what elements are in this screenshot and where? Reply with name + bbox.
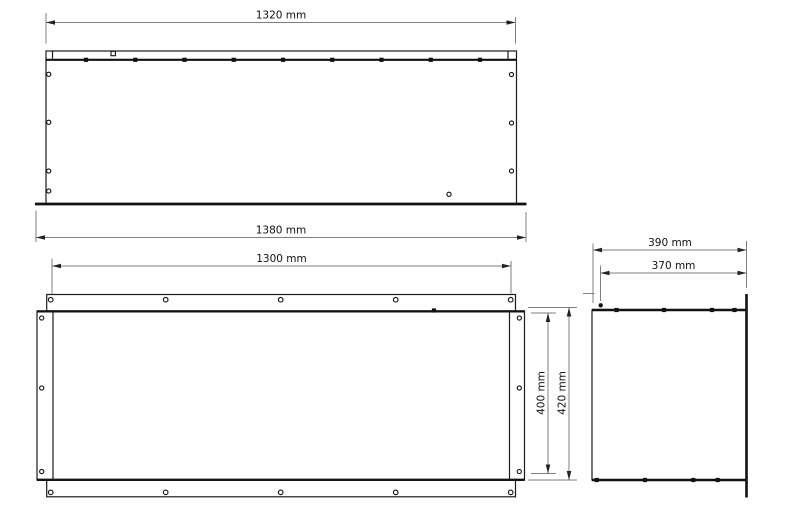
dim-side-inner-depth-label: 370 mm bbox=[652, 260, 696, 272]
mounting-hole bbox=[393, 297, 398, 302]
arrowhead-icon bbox=[502, 264, 511, 269]
arrowhead-icon bbox=[507, 20, 516, 25]
mounting-hole bbox=[48, 490, 53, 495]
mounting-hole bbox=[40, 316, 44, 320]
mounting-hole bbox=[278, 297, 283, 302]
fastener-dot bbox=[133, 58, 137, 62]
mounting-hole bbox=[509, 72, 513, 76]
fastener-dot bbox=[429, 58, 433, 62]
mounting-hole bbox=[447, 192, 451, 196]
mounting-hole bbox=[278, 490, 283, 495]
fastener-dot bbox=[84, 58, 88, 62]
back-top-flange-holes bbox=[48, 297, 513, 302]
fastener-dot bbox=[232, 58, 236, 62]
arrowhead-icon bbox=[738, 248, 747, 253]
fastener-dot bbox=[595, 478, 599, 482]
side-body-outline bbox=[592, 310, 747, 480]
mounting-hole bbox=[517, 316, 521, 320]
fastener-dot bbox=[662, 308, 666, 312]
dim-side-inner-depth: 370 mm bbox=[601, 260, 747, 301]
mounting-hole bbox=[47, 72, 51, 76]
dim-front-base-width: 1380 mm bbox=[36, 211, 526, 243]
mounting-hole bbox=[40, 469, 44, 473]
drawing-canvas: 1320 mm bbox=[0, 0, 787, 517]
mounting-hole bbox=[163, 297, 168, 302]
fastener-dot bbox=[732, 308, 736, 312]
mounting-hole bbox=[517, 386, 521, 390]
dim-front-top-width-label: 1320 mm bbox=[256, 10, 307, 22]
fastener-dot bbox=[614, 308, 618, 312]
fastener-dot bbox=[281, 58, 285, 62]
side-view: 390 mm 370 mm bbox=[592, 237, 747, 498]
back-view: 1300 mm bbox=[37, 253, 595, 497]
fastener-dot bbox=[182, 58, 186, 62]
arrowhead-icon bbox=[546, 465, 551, 474]
front-side-holes bbox=[47, 72, 514, 196]
arrowhead-icon bbox=[36, 235, 45, 240]
mounting-hole bbox=[508, 297, 513, 302]
dim-back-body-height-label: 400 mm bbox=[536, 371, 548, 415]
fastener-dot bbox=[710, 308, 714, 312]
back-bottom-flange-holes bbox=[48, 490, 513, 495]
arrowhead-icon bbox=[593, 248, 602, 253]
back-body-outline bbox=[37, 311, 525, 480]
arrowhead-icon bbox=[517, 235, 526, 240]
mounting-hole bbox=[40, 386, 44, 390]
fastener-dot bbox=[330, 58, 334, 62]
back-side-holes bbox=[40, 316, 522, 474]
dim-front-top-width: 1320 mm bbox=[46, 10, 516, 44]
arrowhead-icon bbox=[601, 271, 610, 276]
mounting-hole bbox=[599, 303, 603, 307]
dim-back-hole-span: 1300 mm bbox=[52, 253, 511, 294]
mounting-hole bbox=[47, 169, 51, 173]
arrowhead-icon bbox=[738, 271, 747, 276]
front-view: 1320 mm bbox=[35, 10, 527, 243]
mounting-hole bbox=[517, 469, 521, 473]
mounting-hole bbox=[508, 490, 513, 495]
fastener-dot bbox=[691, 478, 695, 482]
arrowhead-icon bbox=[52, 264, 61, 269]
mounting-hole bbox=[509, 169, 513, 173]
dim-back-hole-span-label: 1300 mm bbox=[256, 253, 307, 265]
dim-back-body-height: 400 mm bbox=[531, 313, 556, 474]
arrowhead-icon bbox=[46, 20, 55, 25]
fastener-dot bbox=[432, 308, 436, 312]
mounting-hole bbox=[393, 490, 398, 495]
front-body-outline bbox=[46, 51, 517, 204]
mounting-hole bbox=[509, 121, 513, 125]
mounting-hole bbox=[47, 189, 51, 193]
dim-side-overall-depth-label: 390 mm bbox=[648, 237, 692, 249]
arrowhead-icon bbox=[546, 313, 551, 322]
arrowhead-icon bbox=[567, 308, 572, 317]
front-strip-square-hole bbox=[111, 51, 115, 55]
fastener-dot bbox=[478, 58, 482, 62]
fastener-dot bbox=[716, 478, 720, 482]
technical-drawing: 1320 mm bbox=[0, 0, 787, 517]
dim-front-base-width-label: 1380 mm bbox=[256, 225, 307, 237]
mounting-hole bbox=[48, 297, 53, 302]
fastener-dot bbox=[379, 58, 383, 62]
mounting-hole bbox=[47, 120, 51, 124]
mounting-hole bbox=[163, 490, 168, 495]
dim-back-overall-height-label: 420 mm bbox=[557, 371, 569, 415]
arrowhead-icon bbox=[567, 471, 572, 480]
fastener-dot bbox=[643, 478, 647, 482]
